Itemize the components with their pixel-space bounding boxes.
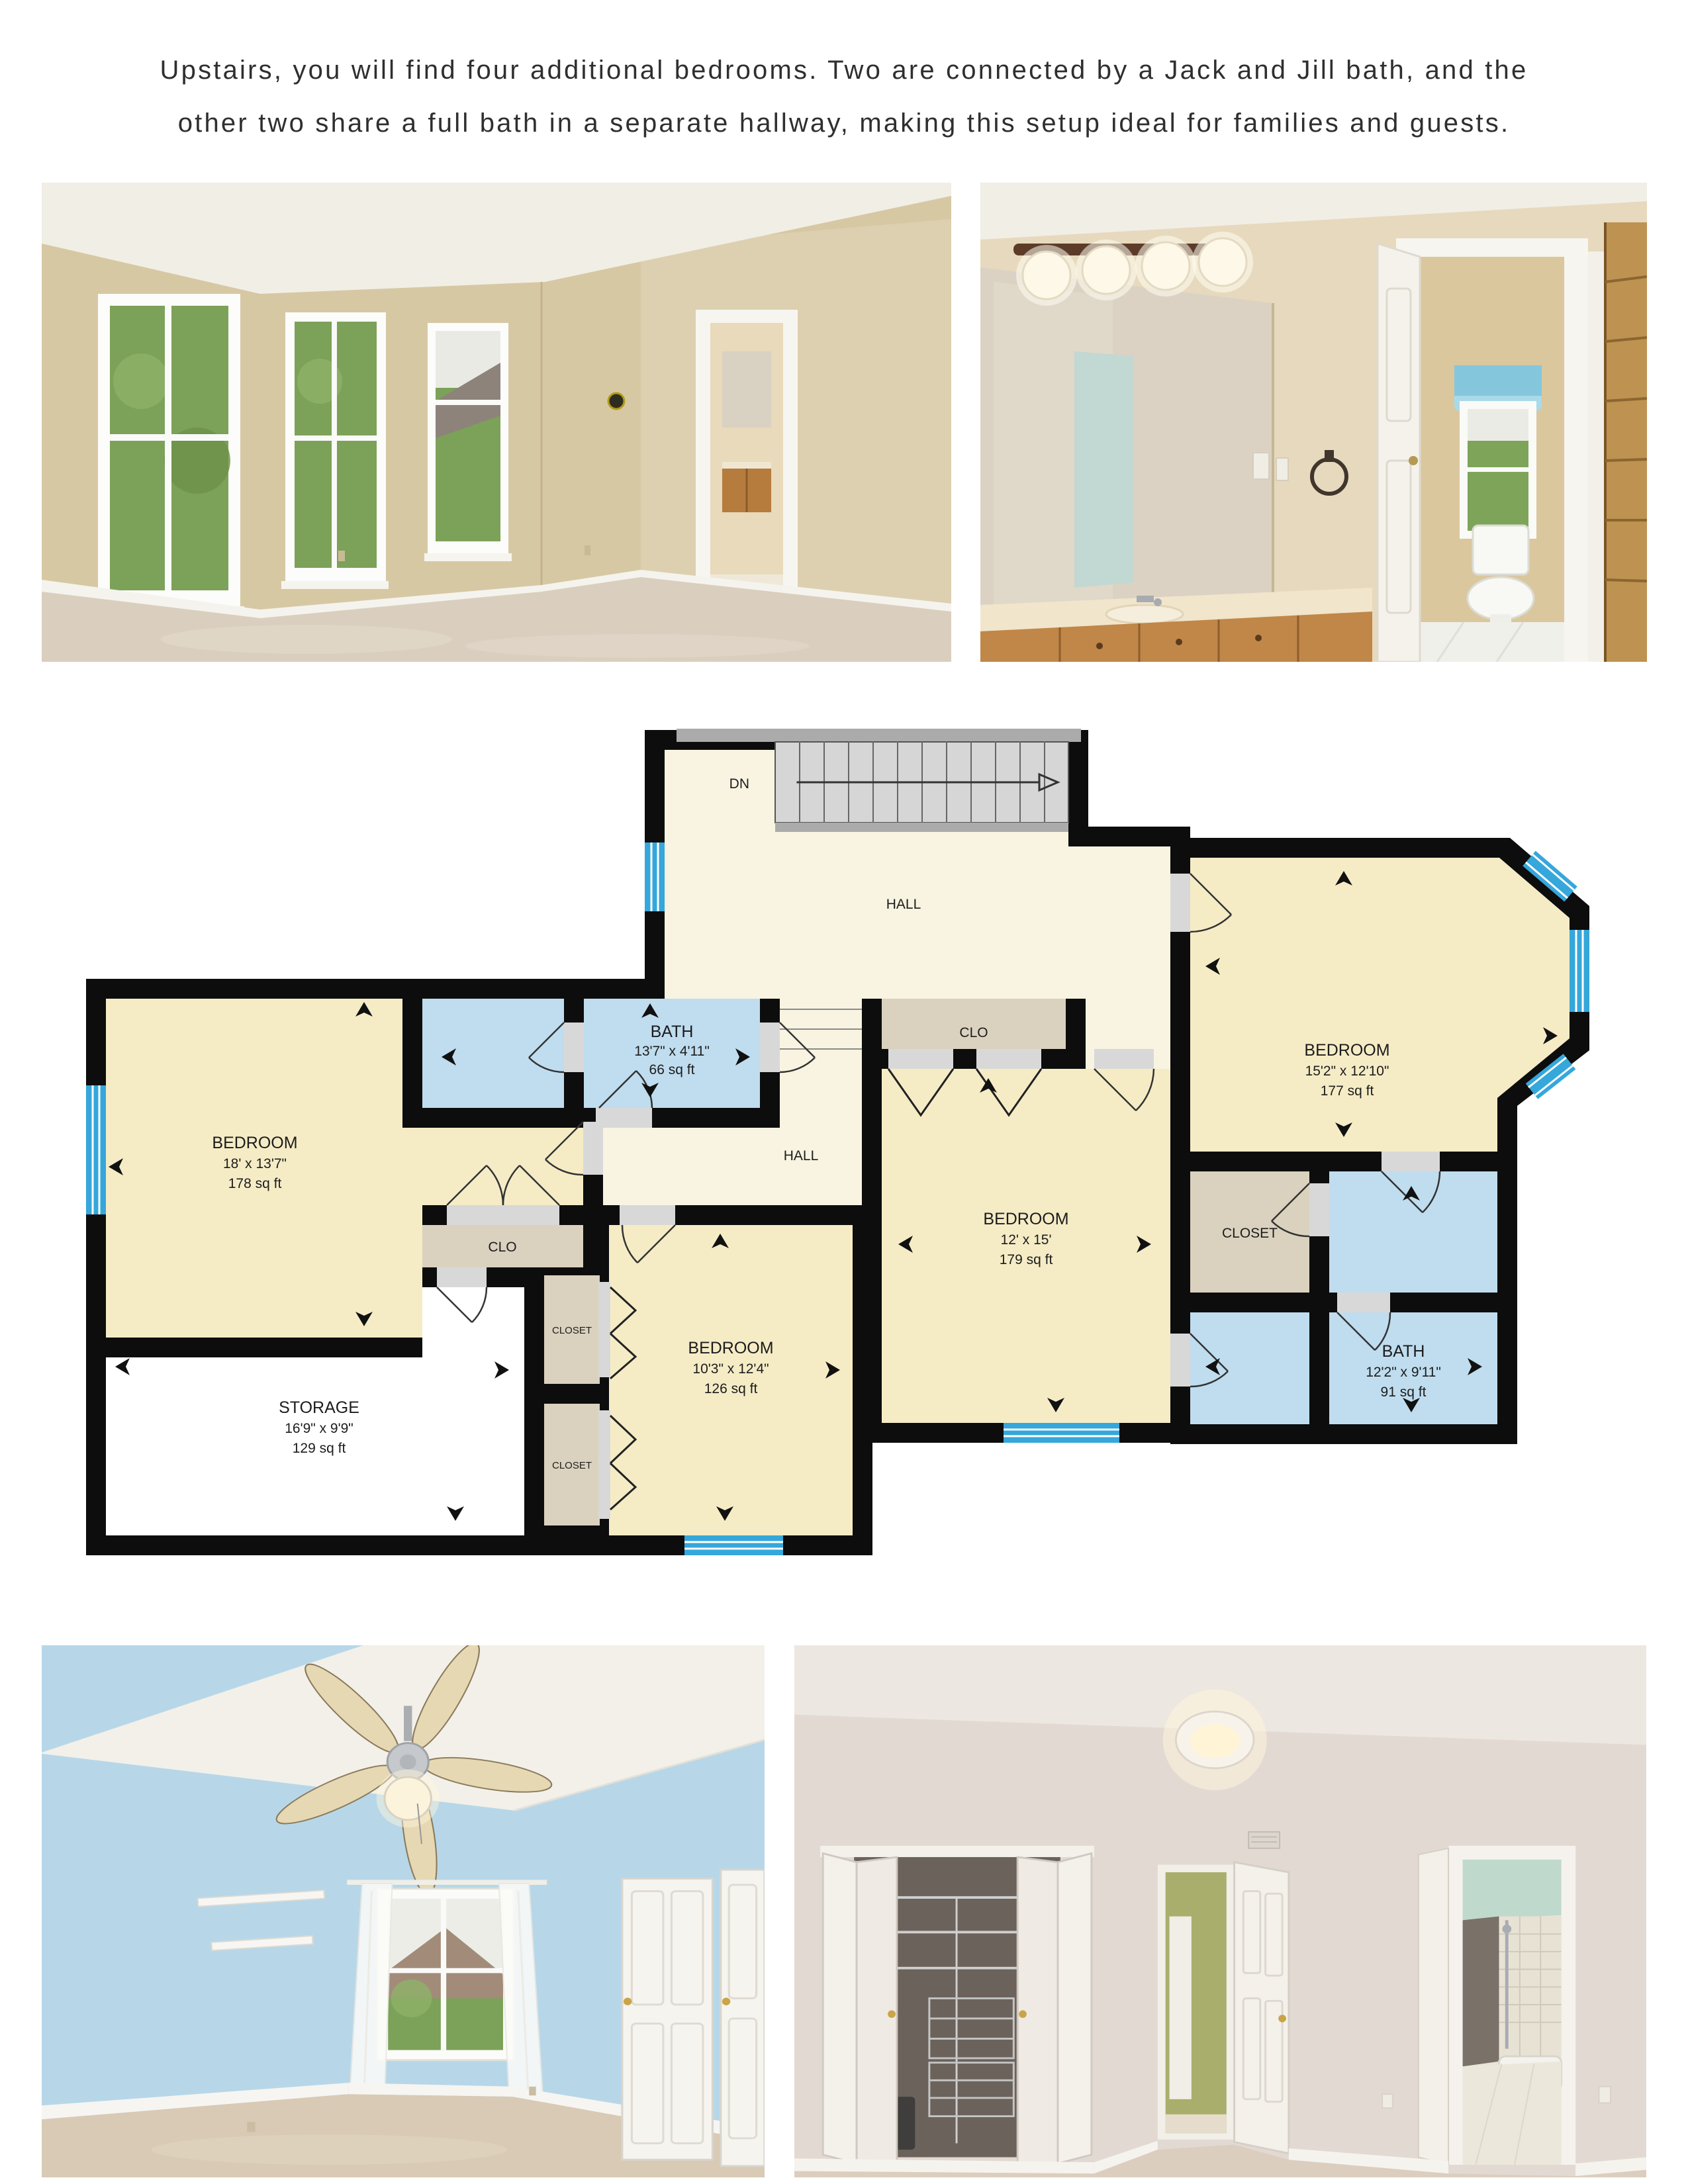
photo-bedroom-bay-window-art	[42, 183, 951, 662]
svg-text:BATH: BATH	[651, 1023, 694, 1041]
photo-bedroom-closet-art	[794, 1645, 1646, 2177]
svg-text:179 sq ft: 179 sq ft	[1000, 1252, 1053, 1267]
hall-upper-label: HALL	[886, 897, 921, 912]
door-knob	[1278, 2015, 1286, 2022]
svg-text:129 sq ft: 129 sq ft	[293, 1441, 346, 1456]
room-bath-right-vestibule	[1190, 1312, 1309, 1424]
hallway-doorway	[1158, 1832, 1289, 2154]
open-closet	[820, 1846, 1094, 2166]
outlet	[1382, 2094, 1393, 2108]
svg-text:15'2" x 12'10": 15'2" x 12'10"	[1305, 1064, 1389, 1079]
svg-text:10'3" x 12'4": 10'3" x 12'4"	[692, 1361, 769, 1377]
svg-text:13'7" x 4'11": 13'7" x 4'11"	[634, 1044, 710, 1059]
open-door-leaf	[1235, 1862, 1289, 2154]
bath-floor	[1463, 2062, 1562, 2165]
linen-shelves	[1588, 222, 1647, 662]
vanity-mirror	[980, 267, 1273, 643]
ceiling-light	[1163, 1690, 1267, 1790]
switch-plate	[1276, 458, 1288, 480]
window	[1004, 1423, 1119, 1443]
svg-text:66 sq ft: 66 sq ft	[649, 1062, 695, 1077]
svg-text:178 sq ft: 178 sq ft	[228, 1176, 282, 1191]
bay-window-2	[281, 312, 389, 589]
photo-bathroom-vanity-art	[980, 183, 1647, 662]
carpet-sheen	[151, 2134, 507, 2165]
svg-text:12' x 15': 12' x 15'	[1001, 1232, 1052, 1248]
svg-text:BEDROOM: BEDROOM	[983, 1210, 1068, 1228]
door-knob	[624, 1998, 632, 2005]
far-door	[1170, 1917, 1192, 2099]
window-bay-right	[1570, 930, 1589, 1012]
thermostat	[1253, 453, 1269, 479]
outlet	[338, 551, 345, 561]
svg-text:BATH: BATH	[1382, 1342, 1425, 1361]
fan-light	[385, 1777, 431, 1820]
outlet	[247, 2122, 255, 2132]
closet-small-lower-label: CLOSET	[552, 1460, 592, 1471]
door-knob	[1019, 2011, 1027, 2018]
aqua-wall	[1463, 1860, 1562, 1920]
intro-line-2: other two share a full bath in a separat…	[0, 97, 1688, 150]
closet-right-label: CLOSET	[1222, 1226, 1278, 1241]
photo-bathroom-vanity	[980, 183, 1647, 662]
outlet	[585, 545, 590, 555]
window	[645, 842, 665, 911]
room-clo-right	[882, 999, 1066, 1049]
svg-text:BEDROOM: BEDROOM	[688, 1339, 773, 1357]
outlet	[1599, 2087, 1611, 2103]
svg-text:BEDROOM: BEDROOM	[1304, 1041, 1389, 1060]
door-knob	[888, 2011, 896, 2018]
closet-doors	[622, 1870, 765, 2166]
svg-text:18' x 13'7": 18' x 13'7"	[223, 1156, 287, 1171]
hall-lower-label: HALL	[784, 1148, 819, 1163]
shower-tile	[1499, 1917, 1561, 2062]
toilet-room-doorway	[1396, 238, 1588, 662]
bathroom-doorway	[1419, 1846, 1575, 2165]
svg-text:177 sq ft: 177 sq ft	[1321, 1083, 1374, 1099]
open-door-leaf	[1378, 244, 1420, 662]
bay-window-1	[93, 294, 244, 615]
window	[684, 1535, 783, 1555]
door-knob	[722, 1998, 730, 2005]
carpet-sheen	[161, 625, 452, 654]
room-bedroom-small	[609, 1225, 853, 1535]
svg-text:12'2" x 9'11": 12'2" x 9'11"	[1366, 1365, 1441, 1380]
listing-page: { "intro": { "line1": "Upstairs, you wil…	[0, 0, 1688, 2184]
photo-bedroom-blue	[42, 1645, 765, 2177]
photo-bedroom-blue-art	[42, 1645, 765, 2177]
bath-door-leaf	[1419, 1848, 1448, 2165]
room-toilet-jackjill	[422, 999, 564, 1108]
shower-head	[1502, 1925, 1511, 1933]
intro-line-1: Upstairs, you will find four additional …	[0, 44, 1688, 97]
stair-down-label: DN	[729, 776, 749, 792]
dark-wall	[1463, 1917, 1499, 2067]
photo-bedroom-closet	[794, 1645, 1646, 2177]
svg-text:126 sq ft: 126 sq ft	[704, 1381, 758, 1396]
intro-paragraph: Upstairs, you will find four additional …	[0, 44, 1688, 150]
clo-right-label: CLO	[959, 1025, 988, 1040]
closet-small-upper-label: CLOSET	[552, 1325, 592, 1336]
floor-plan-art: DN	[86, 711, 1628, 1555]
photo-bedroom-bay-window	[42, 183, 951, 662]
window	[86, 1085, 106, 1214]
clo-left-label: CLO	[488, 1240, 516, 1255]
floor-plan: DN	[86, 711, 1628, 1555]
svg-text:91 sq ft: 91 sq ft	[1381, 1385, 1427, 1400]
outlet	[529, 2087, 536, 2095]
wall-marker	[608, 393, 624, 409]
air-vent	[1248, 1832, 1280, 1848]
bay-window-3	[424, 323, 512, 561]
svg-text:16'9" x 9'9": 16'9" x 9'9"	[285, 1421, 353, 1436]
carpet-sheen	[465, 634, 810, 658]
svg-text:BEDROOM: BEDROOM	[212, 1134, 297, 1152]
svg-text:STORAGE: STORAGE	[279, 1398, 359, 1417]
